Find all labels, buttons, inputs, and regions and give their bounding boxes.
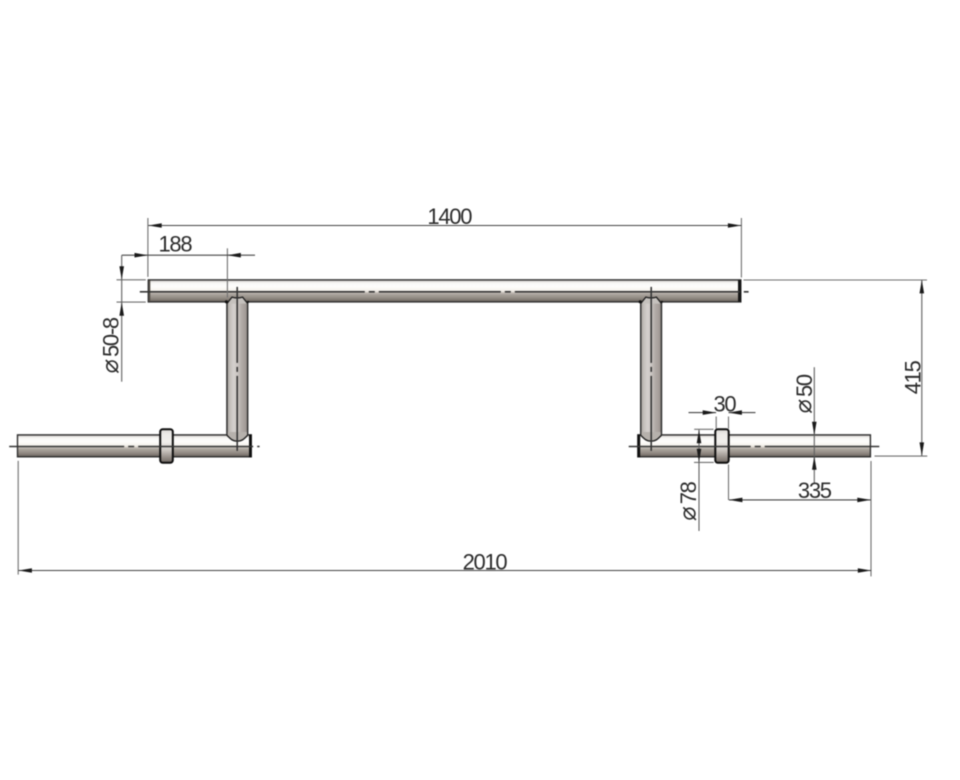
- svg-text:188: 188: [159, 231, 193, 256]
- svg-text:2010: 2010: [463, 549, 508, 574]
- svg-text:50-8: 50-8: [99, 317, 124, 357]
- svg-text:50: 50: [792, 374, 817, 397]
- svg-text:335: 335: [798, 478, 832, 503]
- svg-text:415: 415: [900, 360, 925, 394]
- svg-text:78: 78: [676, 481, 701, 504]
- svg-text:1400: 1400: [427, 204, 472, 229]
- svg-text:30: 30: [713, 391, 736, 416]
